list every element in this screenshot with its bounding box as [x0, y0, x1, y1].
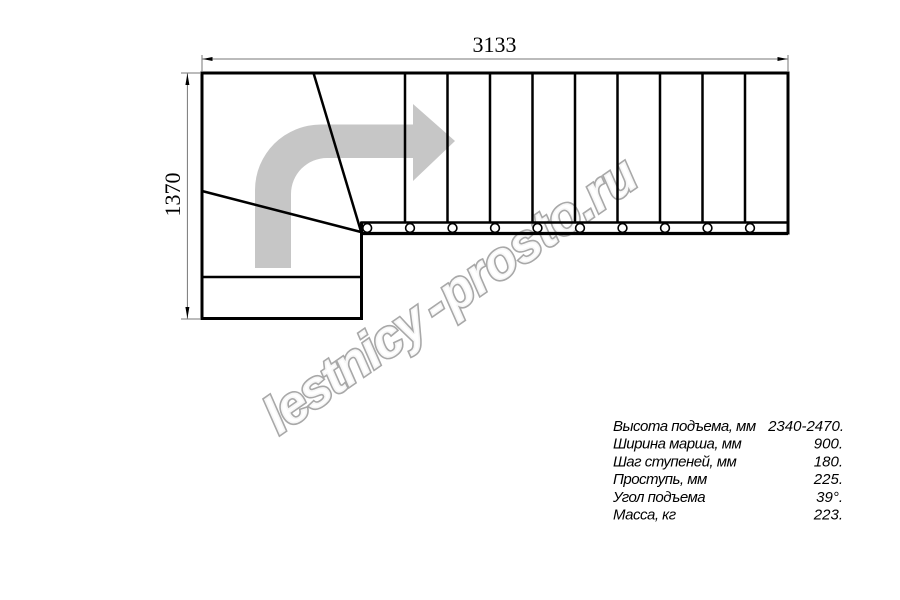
svg-text:Проступь, мм: Проступь, мм [613, 471, 707, 488]
svg-text:223.: 223. [813, 507, 843, 524]
svg-text:900.: 900. [814, 436, 843, 453]
svg-text:Шаг ступеней, мм: Шаг ступеней, мм [613, 453, 737, 470]
svg-text:Угол подъема: Угол подъема [612, 489, 705, 506]
svg-text:39°.: 39°. [816, 489, 843, 506]
svg-text:3133: 3133 [473, 32, 517, 57]
svg-text:Высота подъема, мм: Высота подъема, мм [613, 418, 756, 435]
svg-text:225.: 225. [813, 471, 843, 488]
svg-text:lestnicy-prosto.ru: lestnicy-prosto.ru [252, 145, 648, 445]
svg-text:180.: 180. [814, 453, 843, 470]
svg-text:1370: 1370 [160, 173, 185, 217]
svg-text:Ширина марша, мм: Ширина марша, мм [613, 436, 741, 453]
svg-text:Масса, кг: Масса, кг [613, 507, 677, 524]
svg-text:2340-2470.: 2340-2470. [767, 418, 844, 435]
